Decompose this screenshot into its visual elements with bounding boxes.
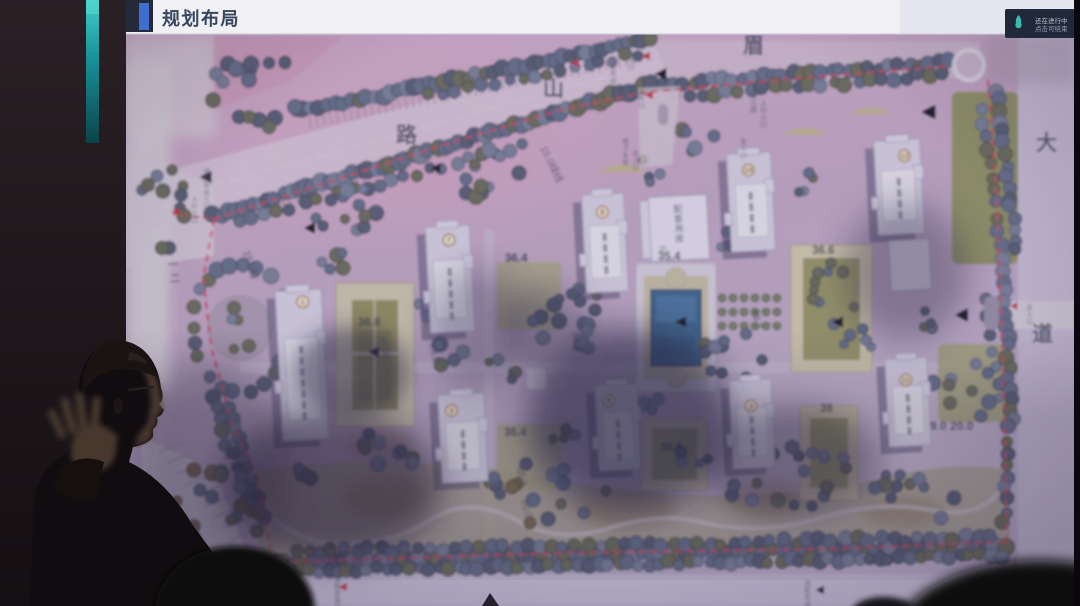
svg-text:规划布局: 规划布局: [162, 8, 240, 29]
svg-text:点击可结束: 点击可结束: [1035, 24, 1068, 33]
svg-text:还在进行中: 还在进行中: [1035, 16, 1068, 25]
